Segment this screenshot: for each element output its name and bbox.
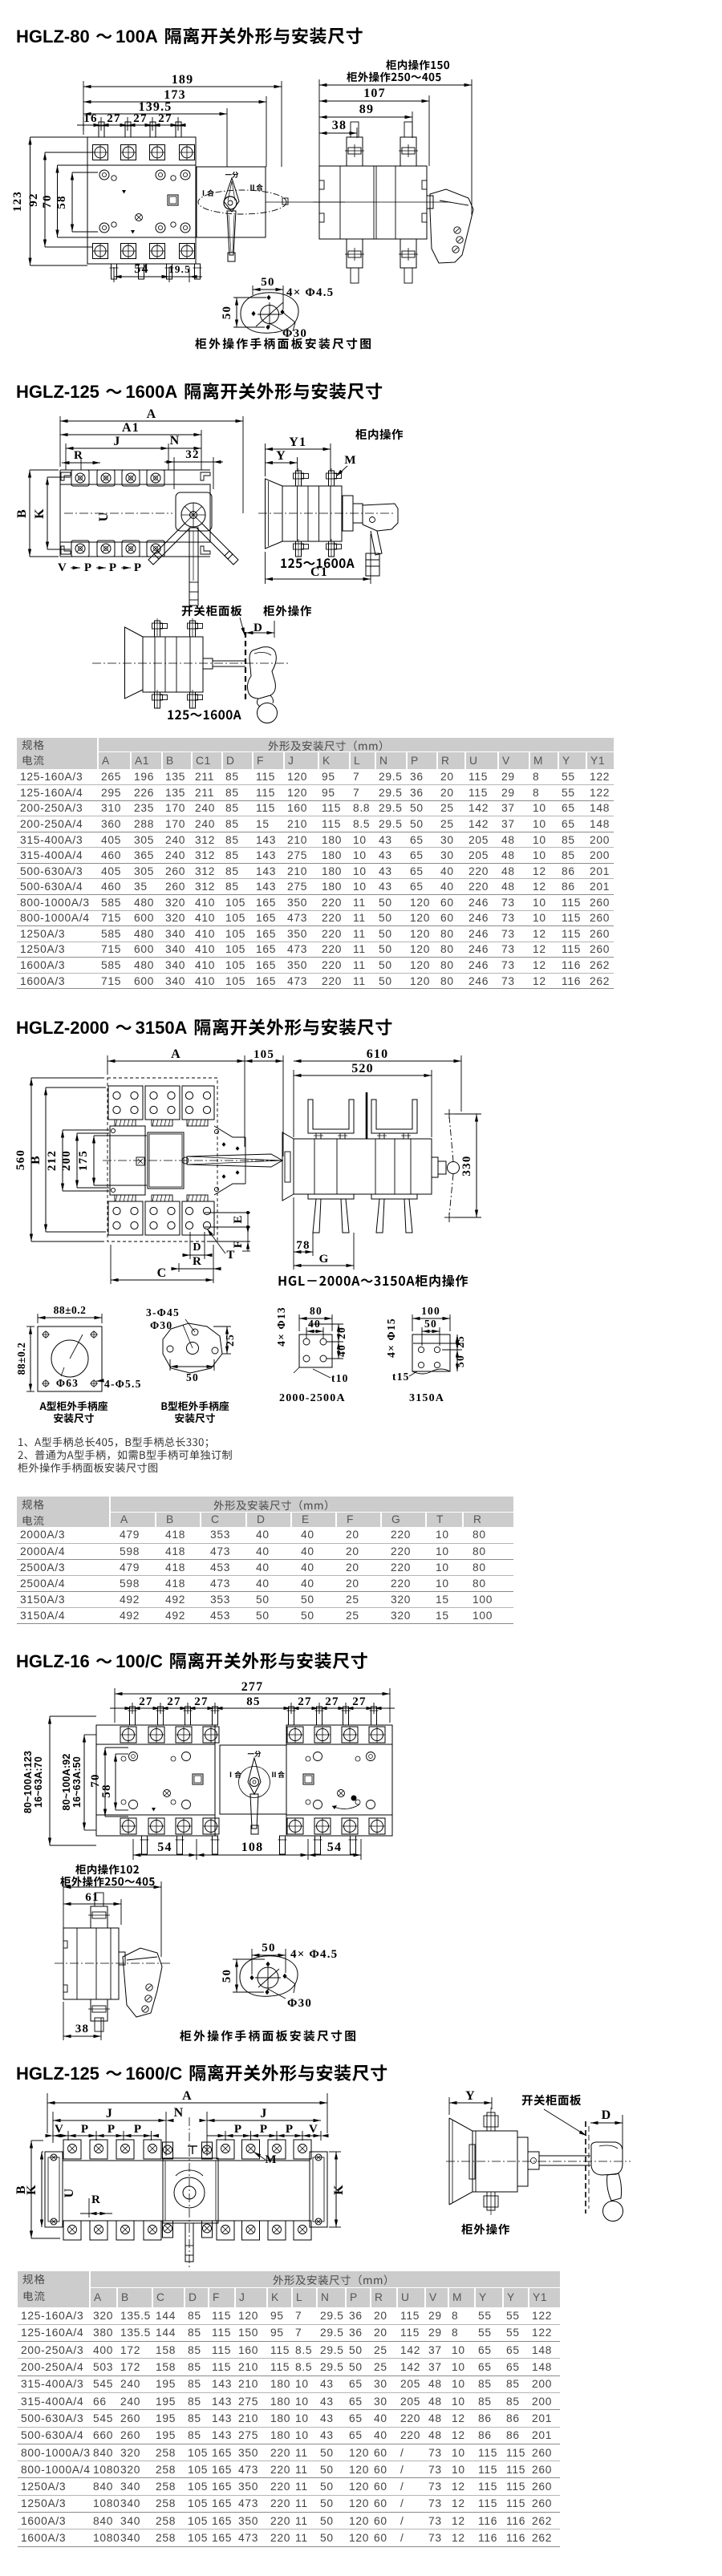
svg-text:175: 175 <box>77 1150 90 1171</box>
svg-text:T: T <box>226 1249 235 1262</box>
svg-text:58: 58 <box>55 195 68 209</box>
svg-text:107: 107 <box>363 87 386 100</box>
svg-text:3150A: 3150A <box>136 1018 188 1038</box>
svg-text:1600A: 1600A <box>125 382 177 402</box>
svg-text:J: J <box>106 2107 113 2120</box>
svg-text:40: 40 <box>335 1344 347 1357</box>
svg-text:P: P <box>134 2123 142 2136</box>
svg-text:M: M <box>344 454 356 467</box>
svg-text:Y1: Y1 <box>289 435 306 449</box>
svg-text:P: P <box>286 2123 294 2136</box>
svg-text:P: P <box>84 561 92 574</box>
svg-text:50: 50 <box>424 1318 437 1330</box>
svg-text:50: 50 <box>454 1355 466 1367</box>
svg-text:108: 108 <box>241 1841 264 1854</box>
svg-text:50: 50 <box>221 306 233 319</box>
svg-text:19.5: 19.5 <box>168 263 191 275</box>
svg-text:K: K <box>33 508 47 519</box>
svg-text:J: J <box>113 435 120 448</box>
svg-text:C: C <box>157 1266 168 1280</box>
svg-text:E: E <box>232 1214 245 1223</box>
svg-text:50: 50 <box>262 1942 275 1954</box>
svg-text:139.5: 139.5 <box>139 100 172 114</box>
svg-text:t10: t10 <box>331 1372 349 1384</box>
svg-text:P: P <box>234 2123 242 2136</box>
svg-text:N: N <box>170 434 180 448</box>
svg-text:A: A <box>182 2089 193 2103</box>
svg-text:78: 78 <box>296 1239 310 1252</box>
svg-text:P: P <box>134 561 142 574</box>
svg-text:V: V <box>58 561 67 574</box>
svg-text:K: K <box>332 2184 346 2195</box>
svg-text:D: D <box>254 622 263 634</box>
svg-text:560: 560 <box>14 1149 27 1170</box>
svg-text:16~63A:50: 16~63A:50 <box>71 1756 83 1808</box>
svg-text:80~100A:123: 80~100A:123 <box>22 1751 34 1813</box>
svg-text:16: 16 <box>83 112 97 125</box>
svg-text:Φ63: Φ63 <box>56 1377 79 1389</box>
svg-text:40: 40 <box>308 1318 321 1330</box>
svg-text:50: 50 <box>221 1969 233 1983</box>
svg-text:38: 38 <box>332 119 347 132</box>
svg-text:M: M <box>265 2153 277 2166</box>
svg-text:20: 20 <box>335 1326 347 1339</box>
svg-text:27: 27 <box>298 1695 311 1708</box>
svg-text:A: A <box>171 1047 181 1061</box>
svg-text:38: 38 <box>75 2023 89 2035</box>
svg-text:27: 27 <box>107 112 120 125</box>
svg-text:2000-2500A: 2000-2500A <box>279 1392 346 1404</box>
svg-text:R: R <box>74 449 83 462</box>
svg-text:123: 123 <box>11 191 24 212</box>
svg-text:t15: t15 <box>392 1371 410 1383</box>
svg-text:520: 520 <box>351 1062 374 1075</box>
svg-text:27: 27 <box>325 1695 339 1708</box>
svg-text:32: 32 <box>185 448 199 461</box>
svg-text:16~63A:70: 16~63A:70 <box>33 1756 44 1808</box>
svg-text:189: 189 <box>172 73 194 87</box>
svg-text:1600/C: 1600/C <box>125 2064 182 2084</box>
svg-text:Φ30: Φ30 <box>287 1997 312 2010</box>
svg-text:HGLZ-125: HGLZ-125 <box>16 2064 99 2084</box>
svg-text:V: V <box>309 2123 318 2136</box>
svg-text:4-Φ5.5: 4-Φ5.5 <box>104 1378 142 1390</box>
svg-text:Φ30: Φ30 <box>150 1319 172 1331</box>
svg-text:27: 27 <box>133 112 147 125</box>
svg-text:U: U <box>97 512 111 522</box>
svg-text:R: R <box>91 2193 101 2206</box>
svg-text:27: 27 <box>194 1695 208 1708</box>
svg-text:27: 27 <box>352 1695 366 1708</box>
svg-text:Y: Y <box>465 2089 476 2103</box>
svg-text:U: U <box>63 2188 76 2198</box>
svg-text:B: B <box>14 2185 28 2194</box>
svg-text:88±0.2: 88±0.2 <box>15 1343 27 1375</box>
svg-text:100/C: 100/C <box>116 1651 163 1671</box>
svg-text:200: 200 <box>60 1150 73 1171</box>
svg-text:HGLZ-16: HGLZ-16 <box>16 1651 90 1671</box>
svg-text:54: 54 <box>157 1841 172 1854</box>
svg-text:A: A <box>147 407 157 421</box>
svg-text:85: 85 <box>246 1695 260 1708</box>
svg-text:4× Φ4.5: 4× Φ4.5 <box>286 286 334 299</box>
svg-text:173: 173 <box>164 88 186 102</box>
svg-text:4× Φ15: 4× Φ15 <box>385 1318 397 1358</box>
svg-text:27: 27 <box>158 112 172 125</box>
svg-text:58: 58 <box>100 1784 113 1797</box>
svg-text:B: B <box>15 508 29 518</box>
svg-text:330: 330 <box>460 1155 473 1176</box>
svg-text:50: 50 <box>261 276 274 289</box>
svg-text:27: 27 <box>167 1695 180 1708</box>
svg-text:610: 610 <box>367 1047 389 1061</box>
svg-text:100A: 100A <box>116 26 158 47</box>
svg-text:105: 105 <box>254 1048 274 1061</box>
svg-text:80: 80 <box>310 1305 322 1317</box>
svg-text:HGLZ-2000: HGLZ-2000 <box>16 1018 109 1038</box>
svg-text:HGLZ-80: HGLZ-80 <box>16 26 90 47</box>
svg-text:4× Φ4.5: 4× Φ4.5 <box>290 1948 338 1961</box>
svg-text:D: D <box>193 1241 201 1254</box>
svg-text:P: P <box>109 561 117 574</box>
svg-text:61: 61 <box>85 1891 99 1904</box>
svg-text:Φ30: Φ30 <box>282 327 307 340</box>
svg-text:100: 100 <box>421 1305 440 1317</box>
svg-text:54: 54 <box>327 1841 342 1854</box>
svg-text:R: R <box>193 1255 202 1268</box>
svg-text:3-Φ45: 3-Φ45 <box>146 1306 180 1318</box>
svg-text:70: 70 <box>41 194 54 208</box>
svg-text:54: 54 <box>134 262 148 276</box>
svg-text:212: 212 <box>46 1150 59 1171</box>
svg-text:K: K <box>25 2184 39 2195</box>
svg-text:P: P <box>81 2123 89 2136</box>
svg-text:92: 92 <box>27 192 40 206</box>
svg-text:F: F <box>232 1240 245 1248</box>
svg-text:50: 50 <box>186 1371 199 1383</box>
svg-text:88±0.2: 88±0.2 <box>54 1304 87 1316</box>
svg-text:N: N <box>174 2106 185 2120</box>
svg-text:3150A: 3150A <box>409 1392 444 1404</box>
svg-text:70: 70 <box>89 1773 102 1787</box>
svg-text:V: V <box>55 2123 64 2136</box>
svg-text:80~100A:92: 80~100A:92 <box>61 1753 72 1810</box>
svg-text:P: P <box>260 2123 268 2136</box>
svg-text:D: D <box>602 2108 612 2122</box>
svg-text:B: B <box>29 1155 43 1164</box>
svg-text:G: G <box>319 1253 330 1266</box>
svg-text:A1: A1 <box>122 421 140 435</box>
svg-text:HGLZ-125: HGLZ-125 <box>16 382 99 402</box>
svg-text:4× Φ13: 4× Φ13 <box>275 1306 287 1347</box>
svg-text:Y: Y <box>276 449 286 463</box>
svg-text:C1: C1 <box>310 565 328 579</box>
svg-text:89: 89 <box>359 103 374 116</box>
svg-text:J: J <box>260 2107 267 2120</box>
svg-text:27: 27 <box>139 1695 152 1708</box>
svg-text:277: 277 <box>241 1680 264 1694</box>
svg-text:P: P <box>107 2123 116 2136</box>
svg-text:25: 25 <box>224 1334 236 1347</box>
svg-text:25: 25 <box>454 1335 466 1348</box>
